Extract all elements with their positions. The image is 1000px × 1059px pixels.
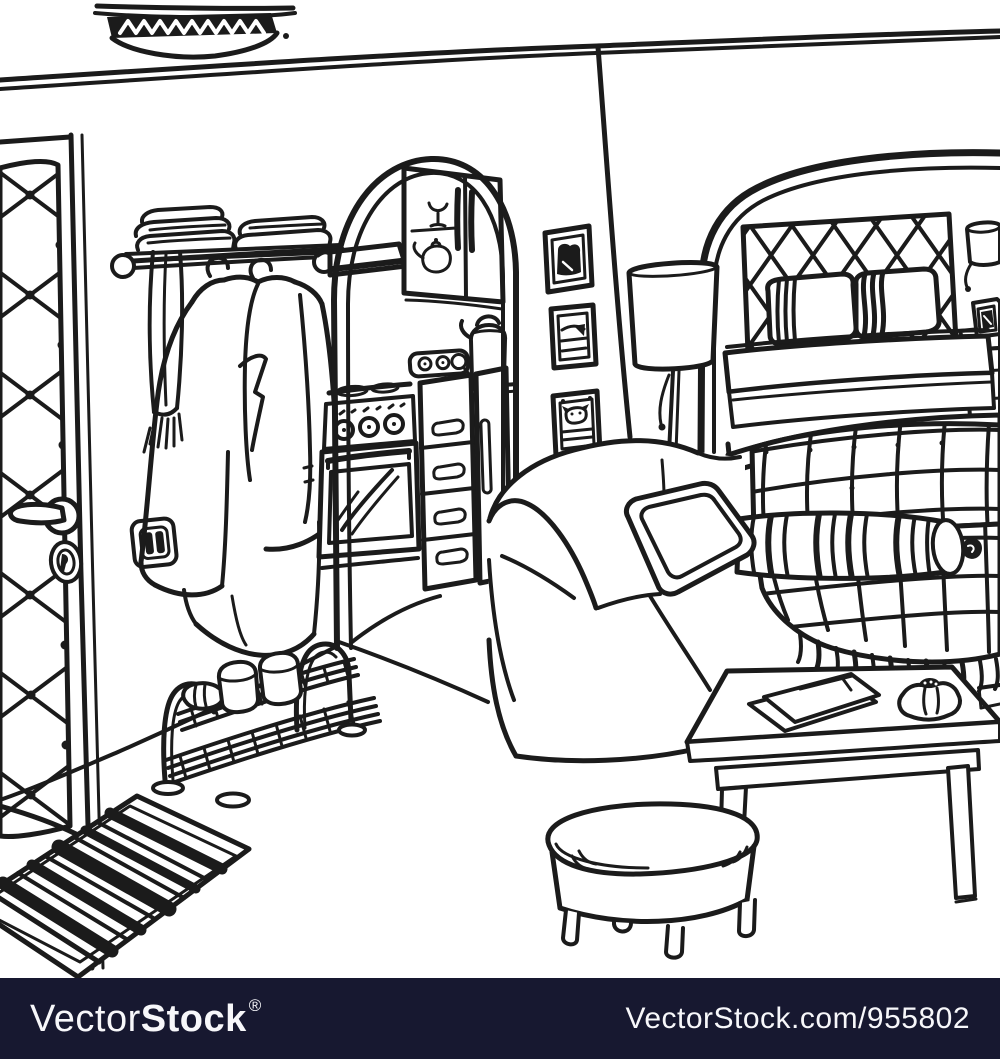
bolster-cushion	[737, 509, 982, 579]
illustration-canvas: VectorStock® VectorStock.com/955802	[0, 0, 1000, 1059]
picture-portrait	[545, 226, 592, 292]
scarf	[144, 252, 182, 452]
kitchen-drawers	[420, 375, 476, 589]
logo-stock: Stock	[141, 998, 247, 1040]
picture-abstract	[551, 305, 596, 368]
bed	[725, 330, 994, 427]
slipper	[183, 683, 223, 709]
wall-pictures	[545, 226, 600, 456]
scarf-fringe	[144, 414, 182, 452]
apartment-sketch	[0, 0, 1000, 978]
registered-mark-icon: ®	[249, 996, 262, 1015]
wall-sconce	[965, 222, 1000, 292]
watermark-bar: VectorStock® VectorStock.com/955802	[0, 978, 1000, 1059]
shoe-rack	[153, 644, 380, 806]
light-switch	[131, 518, 178, 568]
ceiling-lamp	[95, 6, 295, 57]
vectorstock-logo: VectorStock®	[30, 996, 262, 1041]
table-leg	[948, 766, 975, 898]
watermark-url: VectorStock.com/955802	[625, 1002, 970, 1036]
coats	[141, 258, 337, 656]
logo-vector: Vector	[30, 998, 141, 1040]
ottoman	[548, 804, 757, 958]
